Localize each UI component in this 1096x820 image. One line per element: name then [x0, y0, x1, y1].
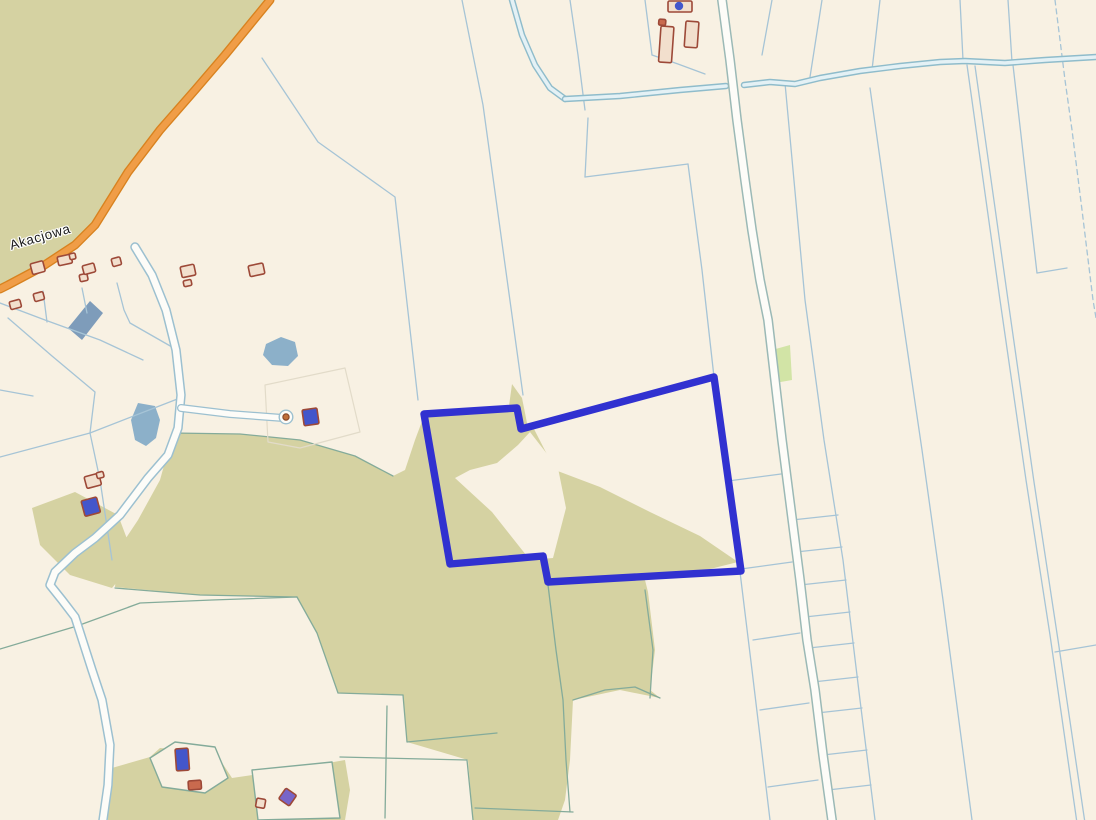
building — [96, 471, 104, 479]
road-north-south — [722, 0, 832, 820]
parcel-boundary-line — [570, 0, 585, 110]
pond — [131, 403, 160, 446]
parcel-boundary-line — [762, 0, 772, 55]
parcel-boundary-line — [810, 0, 822, 77]
parcel-boundary-line — [809, 643, 854, 648]
ditch — [565, 86, 726, 99]
parcel-boundary-line — [462, 0, 523, 395]
ditch — [512, 0, 565, 99]
parcel-boundary-line — [340, 757, 473, 820]
building — [82, 263, 96, 275]
parcel-boundary-line — [800, 580, 846, 585]
address-point — [675, 2, 683, 10]
building — [9, 299, 22, 310]
forest-area-northwest — [0, 0, 268, 285]
parcel-boundary-line — [585, 118, 588, 177]
pond — [263, 337, 298, 366]
map-canvas[interactable] — [0, 0, 1096, 820]
building — [255, 798, 265, 808]
building — [658, 19, 665, 26]
parcel-boundary-line — [740, 572, 770, 820]
parcel-boundary-line — [645, 0, 652, 55]
parcel-boundary-line — [0, 597, 297, 649]
parcel-boundary-line — [967, 65, 1077, 820]
parcel-boundary-line — [688, 164, 714, 377]
building — [33, 291, 45, 301]
building-address-point — [175, 748, 190, 771]
parcel-boundary-line — [823, 750, 867, 755]
building — [684, 21, 699, 48]
parcel-boundary-line — [1013, 65, 1037, 273]
building — [180, 264, 196, 278]
parcel-boundary-line — [975, 66, 1085, 820]
parcel-boundary-line — [785, 83, 875, 820]
parcel-boundary-line — [728, 474, 781, 481]
building — [111, 257, 122, 267]
parcel-boundary-line — [0, 390, 33, 396]
parcel-boundary-line — [872, 0, 880, 70]
parcel-boundary-line — [385, 706, 387, 818]
parcel-boundary-line — [753, 633, 800, 640]
building — [248, 263, 265, 277]
parcel-boundary-line — [0, 303, 143, 360]
parcel-boundary-line — [1055, 645, 1096, 652]
parcel-boundary-line — [585, 164, 688, 177]
parcel-boundary-line — [760, 703, 809, 710]
parcel-boundary-line — [828, 785, 871, 790]
building-address-point — [81, 497, 101, 517]
ditch — [512, 0, 565, 99]
parcel-boundary-line — [792, 515, 838, 520]
building — [30, 261, 45, 275]
point-feature — [283, 414, 289, 420]
dashed-boundary-line — [1055, 0, 1096, 318]
map-view: Akacjowa — [0, 0, 1096, 820]
parcel-island — [252, 762, 340, 820]
parcel-boundary-line — [1037, 268, 1067, 273]
parcel-boundary-line — [817, 708, 862, 713]
parcel-boundary-line — [1008, 0, 1012, 62]
parcel-boundary-line — [960, 0, 963, 60]
parcel-boundary-line — [805, 612, 850, 617]
building-address-point — [302, 408, 319, 426]
parcel-boundary-line — [870, 88, 972, 820]
building — [183, 279, 192, 287]
building — [188, 780, 202, 790]
parcel-boundary-line — [741, 562, 792, 569]
parcel-boundary-line — [768, 780, 818, 787]
building — [69, 253, 76, 260]
building — [658, 26, 673, 63]
parcel-boundary-line — [796, 547, 842, 552]
parcel-boundary-line — [813, 677, 858, 682]
